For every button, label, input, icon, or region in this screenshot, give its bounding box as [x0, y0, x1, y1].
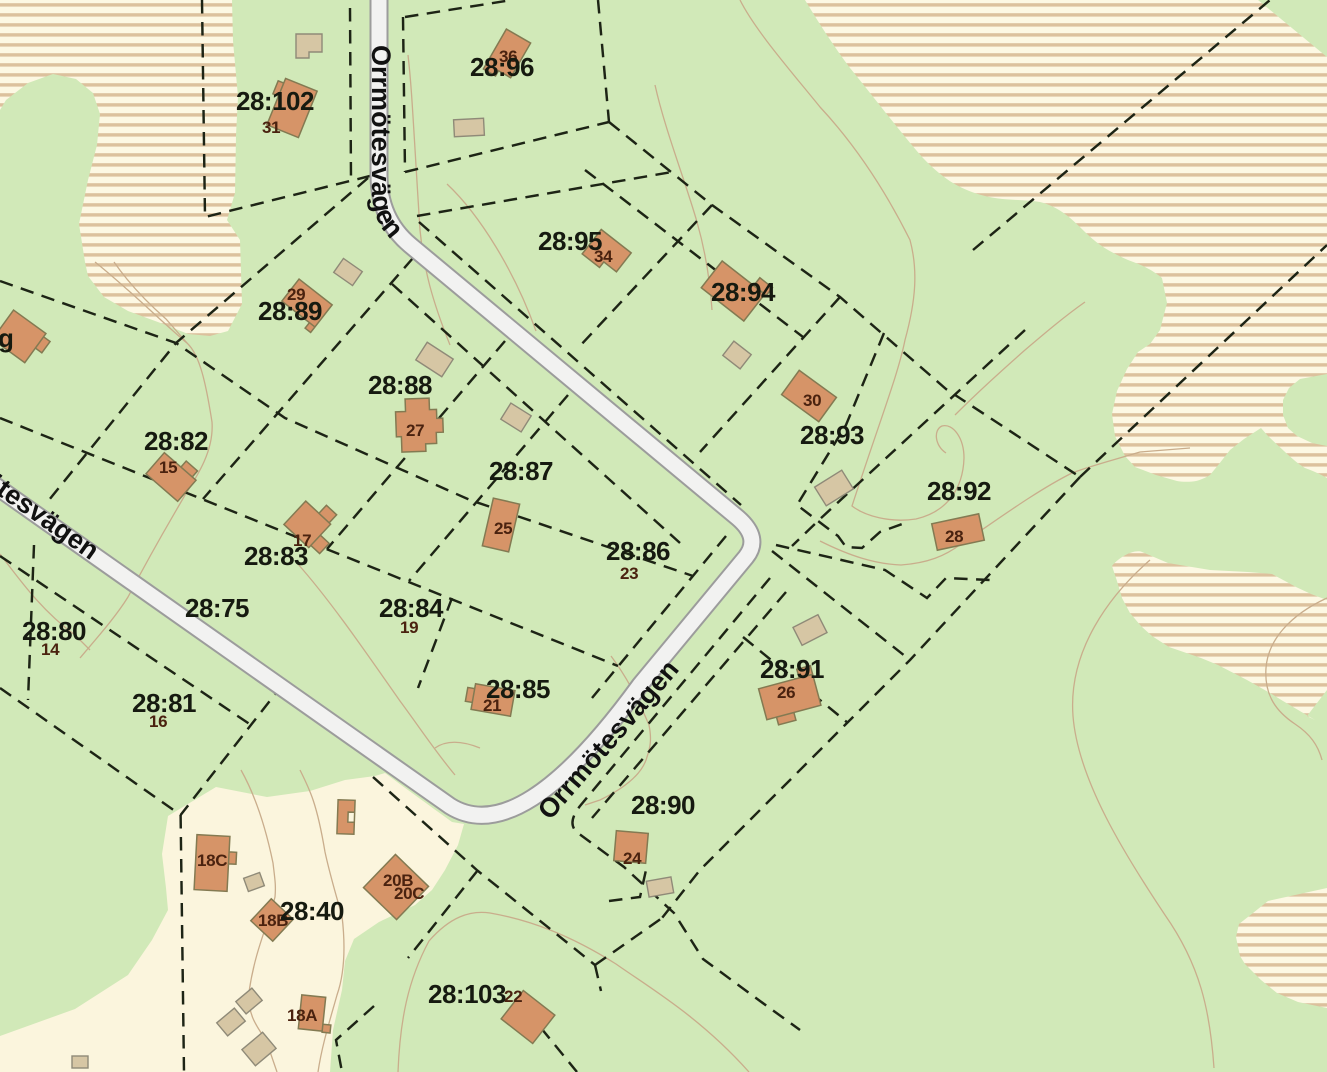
- svg-text:18C: 18C: [197, 851, 227, 870]
- svg-text:27: 27: [406, 421, 424, 440]
- svg-text:28:75: 28:75: [185, 593, 249, 623]
- svg-text:28:83: 28:83: [244, 541, 308, 571]
- svg-text:20C: 20C: [394, 884, 424, 903]
- svg-text:28:91: 28:91: [760, 654, 824, 684]
- svg-text:28:40: 28:40: [280, 896, 344, 926]
- svg-text:28: 28: [945, 527, 963, 546]
- svg-text:30: 30: [803, 391, 821, 410]
- svg-text:28:84: 28:84: [379, 593, 444, 623]
- svg-text:28:96: 28:96: [470, 52, 534, 82]
- svg-text:28:81: 28:81: [132, 688, 196, 718]
- svg-text:28:88: 28:88: [368, 370, 432, 400]
- svg-text:28:94: 28:94: [711, 277, 776, 307]
- svg-text:28:89: 28:89: [258, 296, 322, 326]
- svg-text:28:80: 28:80: [22, 616, 86, 646]
- svg-text:28:82: 28:82: [144, 426, 208, 456]
- svg-text:28:103: 28:103: [428, 979, 506, 1009]
- svg-text:18A: 18A: [287, 1006, 317, 1025]
- svg-text:28:90: 28:90: [631, 790, 695, 820]
- svg-text:25: 25: [494, 519, 512, 538]
- svg-text:28:87: 28:87: [489, 456, 553, 486]
- svg-text:24: 24: [623, 849, 642, 868]
- svg-text:g: g: [0, 323, 13, 353]
- svg-text:28:86: 28:86: [606, 536, 670, 566]
- svg-text:28:102: 28:102: [236, 86, 314, 116]
- svg-text:28:85: 28:85: [486, 674, 550, 704]
- svg-text:15: 15: [159, 458, 177, 477]
- svg-text:23: 23: [620, 564, 638, 583]
- svg-text:28:92: 28:92: [927, 476, 991, 506]
- svg-text:28:95: 28:95: [538, 226, 602, 256]
- svg-text:31: 31: [262, 118, 280, 137]
- svg-text:22: 22: [504, 987, 522, 1006]
- svg-text:26: 26: [777, 683, 795, 702]
- svg-text:28:93: 28:93: [800, 420, 864, 450]
